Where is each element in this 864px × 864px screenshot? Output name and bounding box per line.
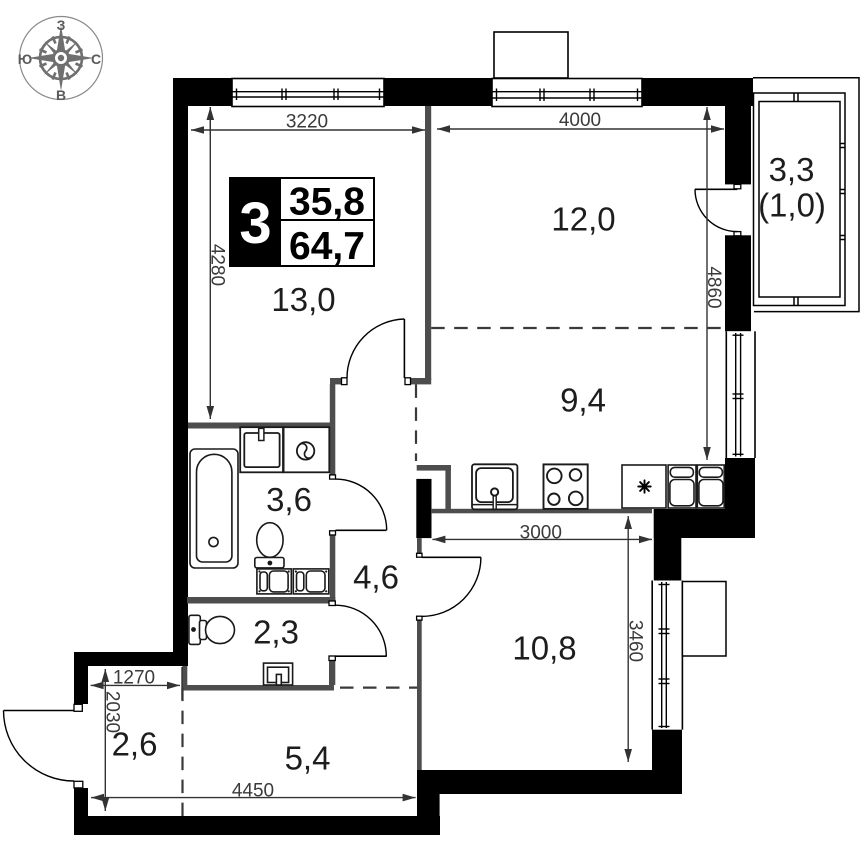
svg-text:3220: 3220: [286, 112, 328, 133]
svg-text:З: З: [57, 17, 66, 33]
svg-text:2,3: 2,3: [253, 614, 299, 651]
svg-text:В: В: [56, 87, 66, 103]
svg-text:4280: 4280: [207, 244, 228, 286]
svg-text:13,0: 13,0: [271, 281, 335, 318]
svg-text:2030: 2030: [102, 691, 123, 733]
svg-text:12,0: 12,0: [551, 201, 615, 238]
svg-text:Ю: Ю: [18, 51, 32, 67]
svg-text:4,6: 4,6: [353, 559, 399, 596]
svg-text:3460: 3460: [624, 620, 645, 662]
svg-text:10,8: 10,8: [512, 630, 576, 667]
svg-text:(1,0): (1,0): [758, 187, 826, 224]
svg-text:3,6: 3,6: [266, 481, 312, 518]
svg-text:3: 3: [239, 191, 271, 256]
svg-text:5,4: 5,4: [285, 740, 331, 777]
svg-text:4860: 4860: [703, 266, 724, 308]
svg-text:35,8: 35,8: [289, 181, 365, 224]
svg-text:3000: 3000: [520, 523, 562, 544]
svg-text:3,3: 3,3: [769, 151, 815, 188]
svg-text:4450: 4450: [232, 780, 274, 801]
svg-text:64,7: 64,7: [289, 225, 365, 268]
svg-text:4000: 4000: [559, 110, 601, 131]
svg-text:С: С: [91, 51, 101, 67]
svg-text:1270: 1270: [113, 668, 155, 689]
svg-text:9,4: 9,4: [560, 382, 606, 419]
